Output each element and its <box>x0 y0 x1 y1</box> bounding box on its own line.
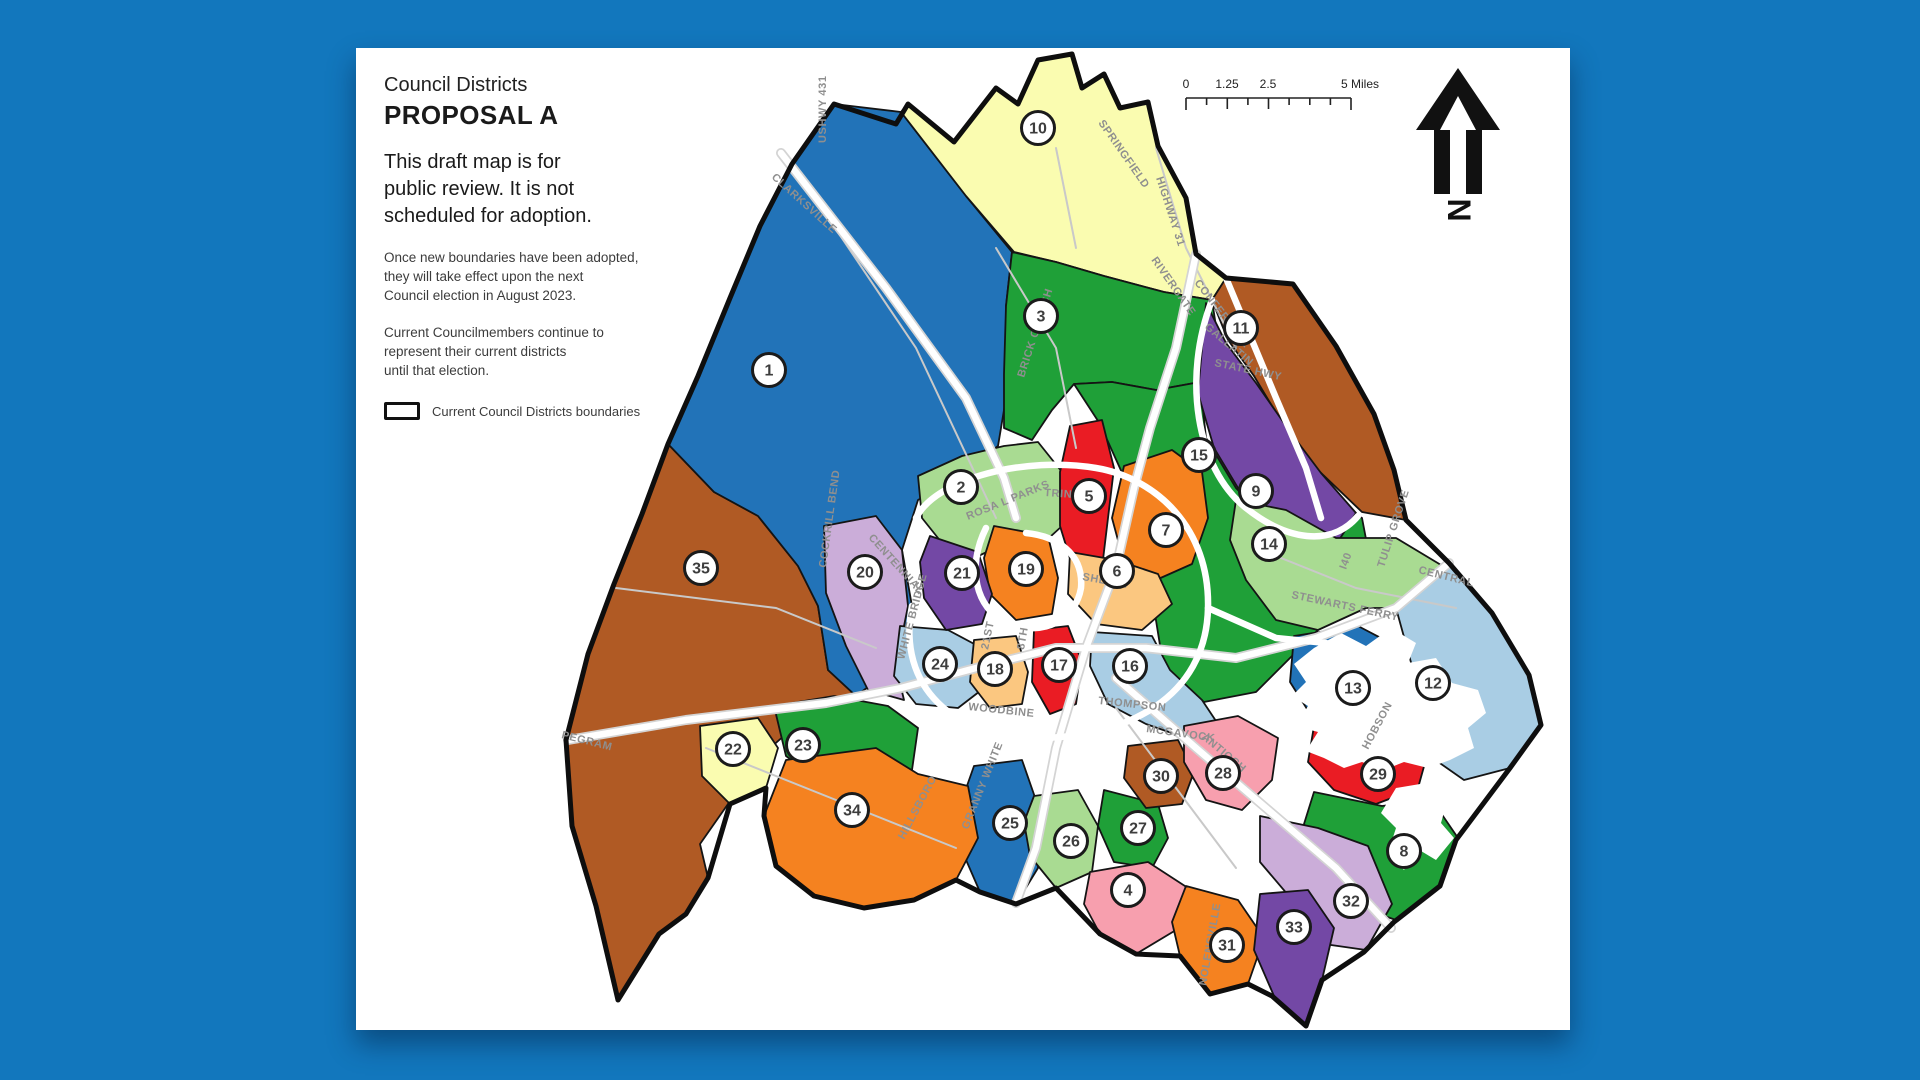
svg-text:31: 31 <box>1218 938 1236 955</box>
north-arrow-icon: N <box>1408 62 1508 222</box>
district-badge-22: 22 <box>717 733 750 766</box>
scale-5-miles: 5 Miles <box>1341 77 1379 91</box>
svg-text:17: 17 <box>1050 658 1068 675</box>
district-badge-11: 11 <box>1225 312 1258 345</box>
svg-text:29: 29 <box>1369 767 1387 784</box>
district-badge-1: 1 <box>753 354 786 387</box>
svg-text:30: 30 <box>1152 769 1170 786</box>
road-label: WOODBINE <box>968 701 1035 720</box>
svg-text:16: 16 <box>1121 659 1139 676</box>
current-members-paragraph: Current Councilmembers continue to repre… <box>384 323 694 380</box>
svg-text:24: 24 <box>931 657 949 674</box>
district-badge-12: 12 <box>1417 667 1450 700</box>
lead-paragraph: This draft map is for public review. It … <box>384 149 694 230</box>
district-badge-15: 15 <box>1183 439 1216 472</box>
district-badge-3: 3 <box>1025 300 1058 333</box>
svg-text:22: 22 <box>724 742 742 759</box>
map-sheet: USHWY 431CLARKSVILLESPRINGFIELDHIGHWAY 3… <box>356 48 1570 1030</box>
adoption-paragraph: Once new boundaries have been adopted, t… <box>384 248 694 305</box>
svg-text:4: 4 <box>1124 883 1133 900</box>
svg-text:33: 33 <box>1285 920 1303 937</box>
district-badge-14: 14 <box>1253 528 1286 561</box>
svg-text:5: 5 <box>1085 489 1094 506</box>
district-badge-32: 32 <box>1335 885 1368 918</box>
svg-text:18: 18 <box>986 662 1004 679</box>
district-badge-33: 33 <box>1278 911 1311 944</box>
svg-text:8: 8 <box>1400 844 1409 861</box>
svg-text:9: 9 <box>1252 484 1261 501</box>
district-badge-6: 6 <box>1101 555 1134 588</box>
svg-text:10: 10 <box>1029 121 1047 138</box>
scale-bar: 0 1.25 2.5 5 Miles <box>1171 72 1441 120</box>
svg-text:26: 26 <box>1062 834 1080 851</box>
district-badge-19: 19 <box>1010 553 1043 586</box>
district-badge-30: 30 <box>1145 760 1178 793</box>
district-badge-31: 31 <box>1211 929 1244 962</box>
svg-text:14: 14 <box>1260 537 1278 554</box>
svg-text:28: 28 <box>1214 766 1232 783</box>
svg-text:25: 25 <box>1001 816 1019 833</box>
district-badge-24: 24 <box>924 648 957 681</box>
scale-2-5: 2.5 <box>1260 77 1277 91</box>
svg-text:11: 11 <box>1233 321 1250 338</box>
svg-text:1: 1 <box>765 363 774 380</box>
svg-text:6: 6 <box>1113 564 1122 581</box>
svg-text:2: 2 <box>957 480 966 497</box>
district-badge-16: 16 <box>1114 650 1147 683</box>
district-badge-25: 25 <box>994 807 1027 840</box>
svg-text:13: 13 <box>1344 681 1362 698</box>
svg-text:7: 7 <box>1162 523 1171 540</box>
north-letter: N <box>1441 198 1477 221</box>
svg-text:12: 12 <box>1424 676 1442 693</box>
district-badge-13: 13 <box>1337 672 1370 705</box>
district-badge-29: 29 <box>1362 758 1395 791</box>
district-badge-27: 27 <box>1122 812 1155 845</box>
svg-text:19: 19 <box>1017 562 1035 579</box>
svg-text:15: 15 <box>1190 448 1208 465</box>
svg-text:23: 23 <box>794 738 812 755</box>
svg-text:35: 35 <box>692 561 710 578</box>
svg-text:34: 34 <box>843 803 861 820</box>
district-badge-2: 2 <box>945 471 978 504</box>
district-badge-5: 5 <box>1073 480 1106 513</box>
district-badge-28: 28 <box>1207 757 1240 790</box>
legend-label: Current Council Districts boundaries <box>432 404 640 419</box>
district-badge-20: 20 <box>849 556 882 589</box>
map-kicker: Council Districts <box>384 74 694 97</box>
svg-text:21: 21 <box>953 566 971 583</box>
svg-text:3: 3 <box>1037 309 1046 326</box>
district-badge-21: 21 <box>946 557 979 590</box>
scale-1-25: 1.25 <box>1215 77 1239 91</box>
district-badge-17: 17 <box>1043 649 1076 682</box>
page-title: PROPOSAL A <box>384 100 694 131</box>
district-badge-34: 34 <box>836 794 869 827</box>
legend: Current Council Districts boundaries <box>384 402 694 420</box>
district-badge-8: 8 <box>1388 835 1421 868</box>
district-badge-7: 7 <box>1150 514 1183 547</box>
district-badge-10: 10 <box>1022 112 1055 145</box>
road-label: 8TH <box>1015 626 1031 650</box>
district-badge-26: 26 <box>1055 825 1088 858</box>
district-badge-23: 23 <box>787 729 820 762</box>
district-badge-4: 4 <box>1112 874 1145 907</box>
district-badge-9: 9 <box>1240 475 1273 508</box>
district-badge-18: 18 <box>979 653 1012 686</box>
road-label: USHWY 431 <box>817 75 829 143</box>
map-title-block: Council Districts PROPOSAL A This draft … <box>384 74 694 420</box>
current-boundaries-swatch-icon <box>384 402 420 420</box>
district-badge-35: 35 <box>685 552 718 585</box>
svg-text:20: 20 <box>856 565 874 582</box>
scale-0: 0 <box>1183 77 1190 91</box>
svg-text:27: 27 <box>1129 821 1147 838</box>
svg-text:32: 32 <box>1342 894 1360 911</box>
